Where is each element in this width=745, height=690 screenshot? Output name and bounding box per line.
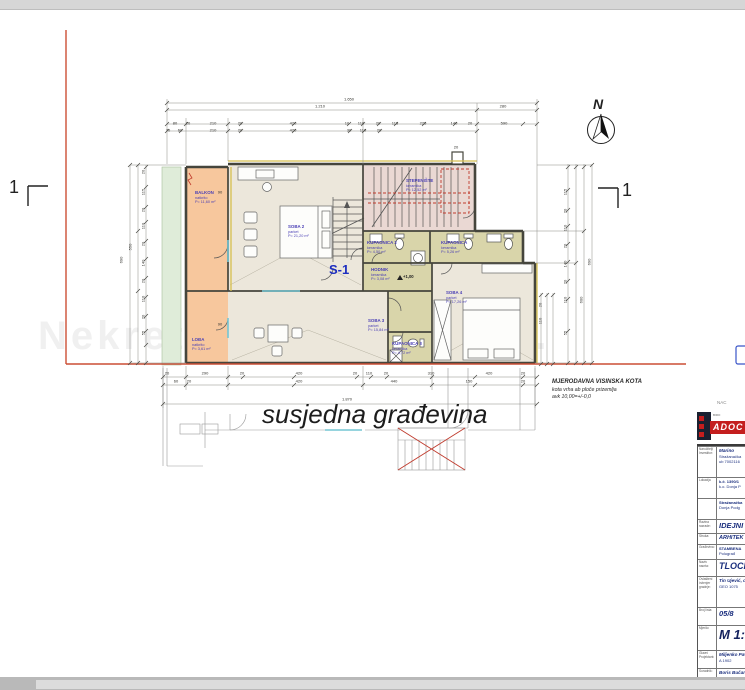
- note-line-3: avk 10,00=+/-0,0: [552, 394, 642, 402]
- dimension-label: 20: [468, 121, 472, 126]
- section-marker-left: [28, 186, 48, 206]
- dimension-label: 20: [187, 379, 191, 384]
- dimension-label: 20: [165, 371, 169, 376]
- dimension-label: 600: [579, 297, 584, 304]
- dimension-label: 55: [141, 331, 146, 335]
- room-label-stepeni-te: STEPENIŠTEkeramikaP= 12,52 m²: [406, 178, 433, 193]
- dimension-label: 690: [587, 259, 592, 266]
- logo-square-icon: [699, 424, 704, 429]
- dimension-label: 20: [377, 128, 381, 133]
- dimension-label: 225: [420, 121, 427, 126]
- room-label-kupaonica: KUPAONICAkeramikaP= 5,26 m²: [441, 240, 467, 255]
- dimension-label: 420: [296, 371, 303, 376]
- title-block-row: Broj lista:05/8: [698, 607, 745, 625]
- dimension-label: 20: [538, 303, 543, 307]
- title-block-row: Lokacijak.č. 1390/1k.o. Donja P: [698, 477, 745, 498]
- dimension-label: 290: [202, 371, 209, 376]
- title-block-row: Ovlašteni inženjer gradnje:Tin Ujević, d…: [698, 576, 745, 607]
- dimension-label: 20: [240, 371, 244, 376]
- note-line-1: MJERODAVNA VISINSKA KOTA: [552, 378, 642, 387]
- dimension-label: 210: [210, 128, 217, 133]
- room-label-soba-3: SOBA 3parketP= 15,84 m²: [368, 318, 389, 333]
- room-label-lo-a: LOĐAnatkritoP= 3,61 m²: [192, 337, 211, 352]
- section-marker-right: [598, 188, 618, 208]
- logo-square-icon: [699, 432, 704, 437]
- logo-dark-panel: [697, 412, 711, 440]
- dimension-label: 20: [353, 371, 357, 376]
- logo-square-icon: [699, 416, 704, 421]
- dimension-label: 210: [210, 121, 217, 126]
- elevation-label: +1,00: [403, 274, 414, 279]
- title-block-row: StražanačkaDonja Podg: [698, 498, 745, 519]
- section-number-right: 1: [622, 180, 632, 201]
- dimension-label: 30: [347, 128, 351, 133]
- note-line-2: kota vrha ab ploče prizemlja: [552, 387, 642, 395]
- dimension-label: 140: [141, 260, 146, 267]
- dimension-label: 420: [290, 128, 297, 133]
- title-block-row: Naručitelj/ Investitor:MarinoStražanačka…: [698, 446, 745, 477]
- dimension-label: 20: [141, 279, 146, 283]
- dimension-label: 20: [521, 371, 525, 376]
- dimension-label: 20: [238, 121, 242, 126]
- dimension-label: 440: [391, 379, 398, 384]
- dimension-label: 20: [521, 379, 525, 384]
- taskbar-inner: [36, 680, 745, 689]
- north-label: N: [593, 96, 603, 112]
- clipped-label-box: [736, 346, 745, 364]
- dimension-label: 1.650: [344, 97, 354, 102]
- dimension-label: 690: [119, 257, 124, 264]
- dimension-label: 420: [296, 379, 303, 384]
- dimension-label: 420: [486, 371, 493, 376]
- dimension-label: 420: [290, 121, 297, 126]
- dimension-label: 110: [366, 371, 372, 376]
- room-label-kupaonica-3: KUPAONICA 3keramikaP= 4,72 m²: [392, 341, 422, 356]
- dimension-label: 20: [141, 315, 146, 319]
- dimension-label: 20: [141, 242, 146, 246]
- dimension-label: 90: [218, 322, 222, 327]
- dimension-label: 1.210: [315, 104, 325, 109]
- room-label-hodnik: HODNIKkeramikaP= 3,08 m²: [371, 267, 390, 282]
- neighbor-stair-cross: [398, 428, 465, 470]
- dimension-label: 20: [563, 280, 568, 284]
- dimension-label: 550: [128, 244, 133, 251]
- title-block-row: Glavni Projektant:Miljenko Pavić dA 1902: [698, 650, 745, 668]
- dimension-label: 90: [218, 190, 222, 195]
- room-label-balkon: BALKONnatkritoP= 11,60 m²: [195, 190, 216, 205]
- title-block: BIRO ADOC Naručitelj/ Investitor:MarinoS…: [697, 410, 745, 680]
- dimension-label: 115: [392, 121, 398, 126]
- dimension-label: 20: [376, 121, 380, 126]
- room-label-soba-2: SOBA 2parketP= 21,20 m²: [288, 224, 309, 239]
- dimension-label: 55: [563, 331, 568, 335]
- drawing-viewer[interactable]: Nekretnine d.o.o.: [0, 0, 745, 690]
- dimension-label: 20: [454, 145, 458, 150]
- room-label-kupaonica-2: KUPAONICA 2keramikaP= 4,50 m²: [367, 240, 397, 255]
- dimension-label: 140: [451, 121, 458, 126]
- logo-side-text: BIRO: [713, 413, 720, 417]
- dimension-label: 310: [428, 371, 435, 376]
- dimension-label: 20: [141, 170, 146, 174]
- dimension-label: 20: [563, 244, 568, 248]
- dimension-label: 20: [186, 121, 190, 126]
- dimension-label: 20: [563, 209, 568, 213]
- dimension-label: 60: [174, 379, 178, 384]
- window-bottom-bar: [0, 677, 745, 690]
- dimension-label: 590: [501, 121, 508, 126]
- dimension-label: 150: [466, 379, 473, 384]
- dimension-label: 20: [384, 371, 388, 376]
- unit-label: S-1: [329, 262, 349, 277]
- dimension-label: 110: [141, 223, 146, 229]
- company-logo: BIRO ADOC: [697, 410, 745, 446]
- dimension-label: 280: [500, 104, 507, 109]
- section-number-left: 1: [9, 177, 19, 198]
- floor-plan-linework: [0, 0, 745, 690]
- title-block-corner-text: NAC: [717, 400, 727, 405]
- dimension-label: 110: [538, 318, 543, 324]
- dimension-label: 20: [141, 208, 146, 212]
- dimension-label: 140: [563, 261, 568, 268]
- neighbor-building-label: susjedna građevina: [262, 399, 488, 430]
- dimension-label: 60: [178, 128, 182, 133]
- room-label-soba-4: SOBA 4parketP= 17,26 m²: [446, 290, 467, 305]
- dimension-label: 20: [238, 128, 242, 133]
- dimension-label: 110: [358, 121, 364, 126]
- north-arrow-icon: [588, 114, 615, 144]
- logo-brand-text: ADOC: [710, 421, 745, 434]
- dimension-label: 110: [360, 128, 366, 133]
- title-block-table: Naručitelj/ Investitor:MarinoStražanačka…: [697, 446, 745, 680]
- title-block-row: Naziv nacrta:TLOCR: [698, 559, 745, 576]
- title-block-row: Mjerilo:M 1:1: [698, 625, 745, 650]
- dimension-label: 10: [345, 121, 349, 126]
- title-block-row: Razina razrade:IDEJNI: [698, 519, 745, 533]
- dimension-label: 110: [563, 225, 568, 231]
- title-block-row: Građevina:STAMBENAPolugrađ: [698, 544, 745, 559]
- height-reference-note: MJERODAVNA VISINSKA KOTA kota vrha ab pl…: [552, 378, 642, 402]
- dimension-label: 110: [563, 297, 568, 303]
- dimension-label: 115: [141, 189, 146, 195]
- title-block-row: Struka:ARHITEK: [698, 533, 745, 544]
- dimension-label: 115: [563, 189, 568, 195]
- dimension-label: 110: [141, 296, 146, 302]
- dimension-label: 70: [166, 128, 170, 133]
- dimension-label: 80: [173, 121, 177, 126]
